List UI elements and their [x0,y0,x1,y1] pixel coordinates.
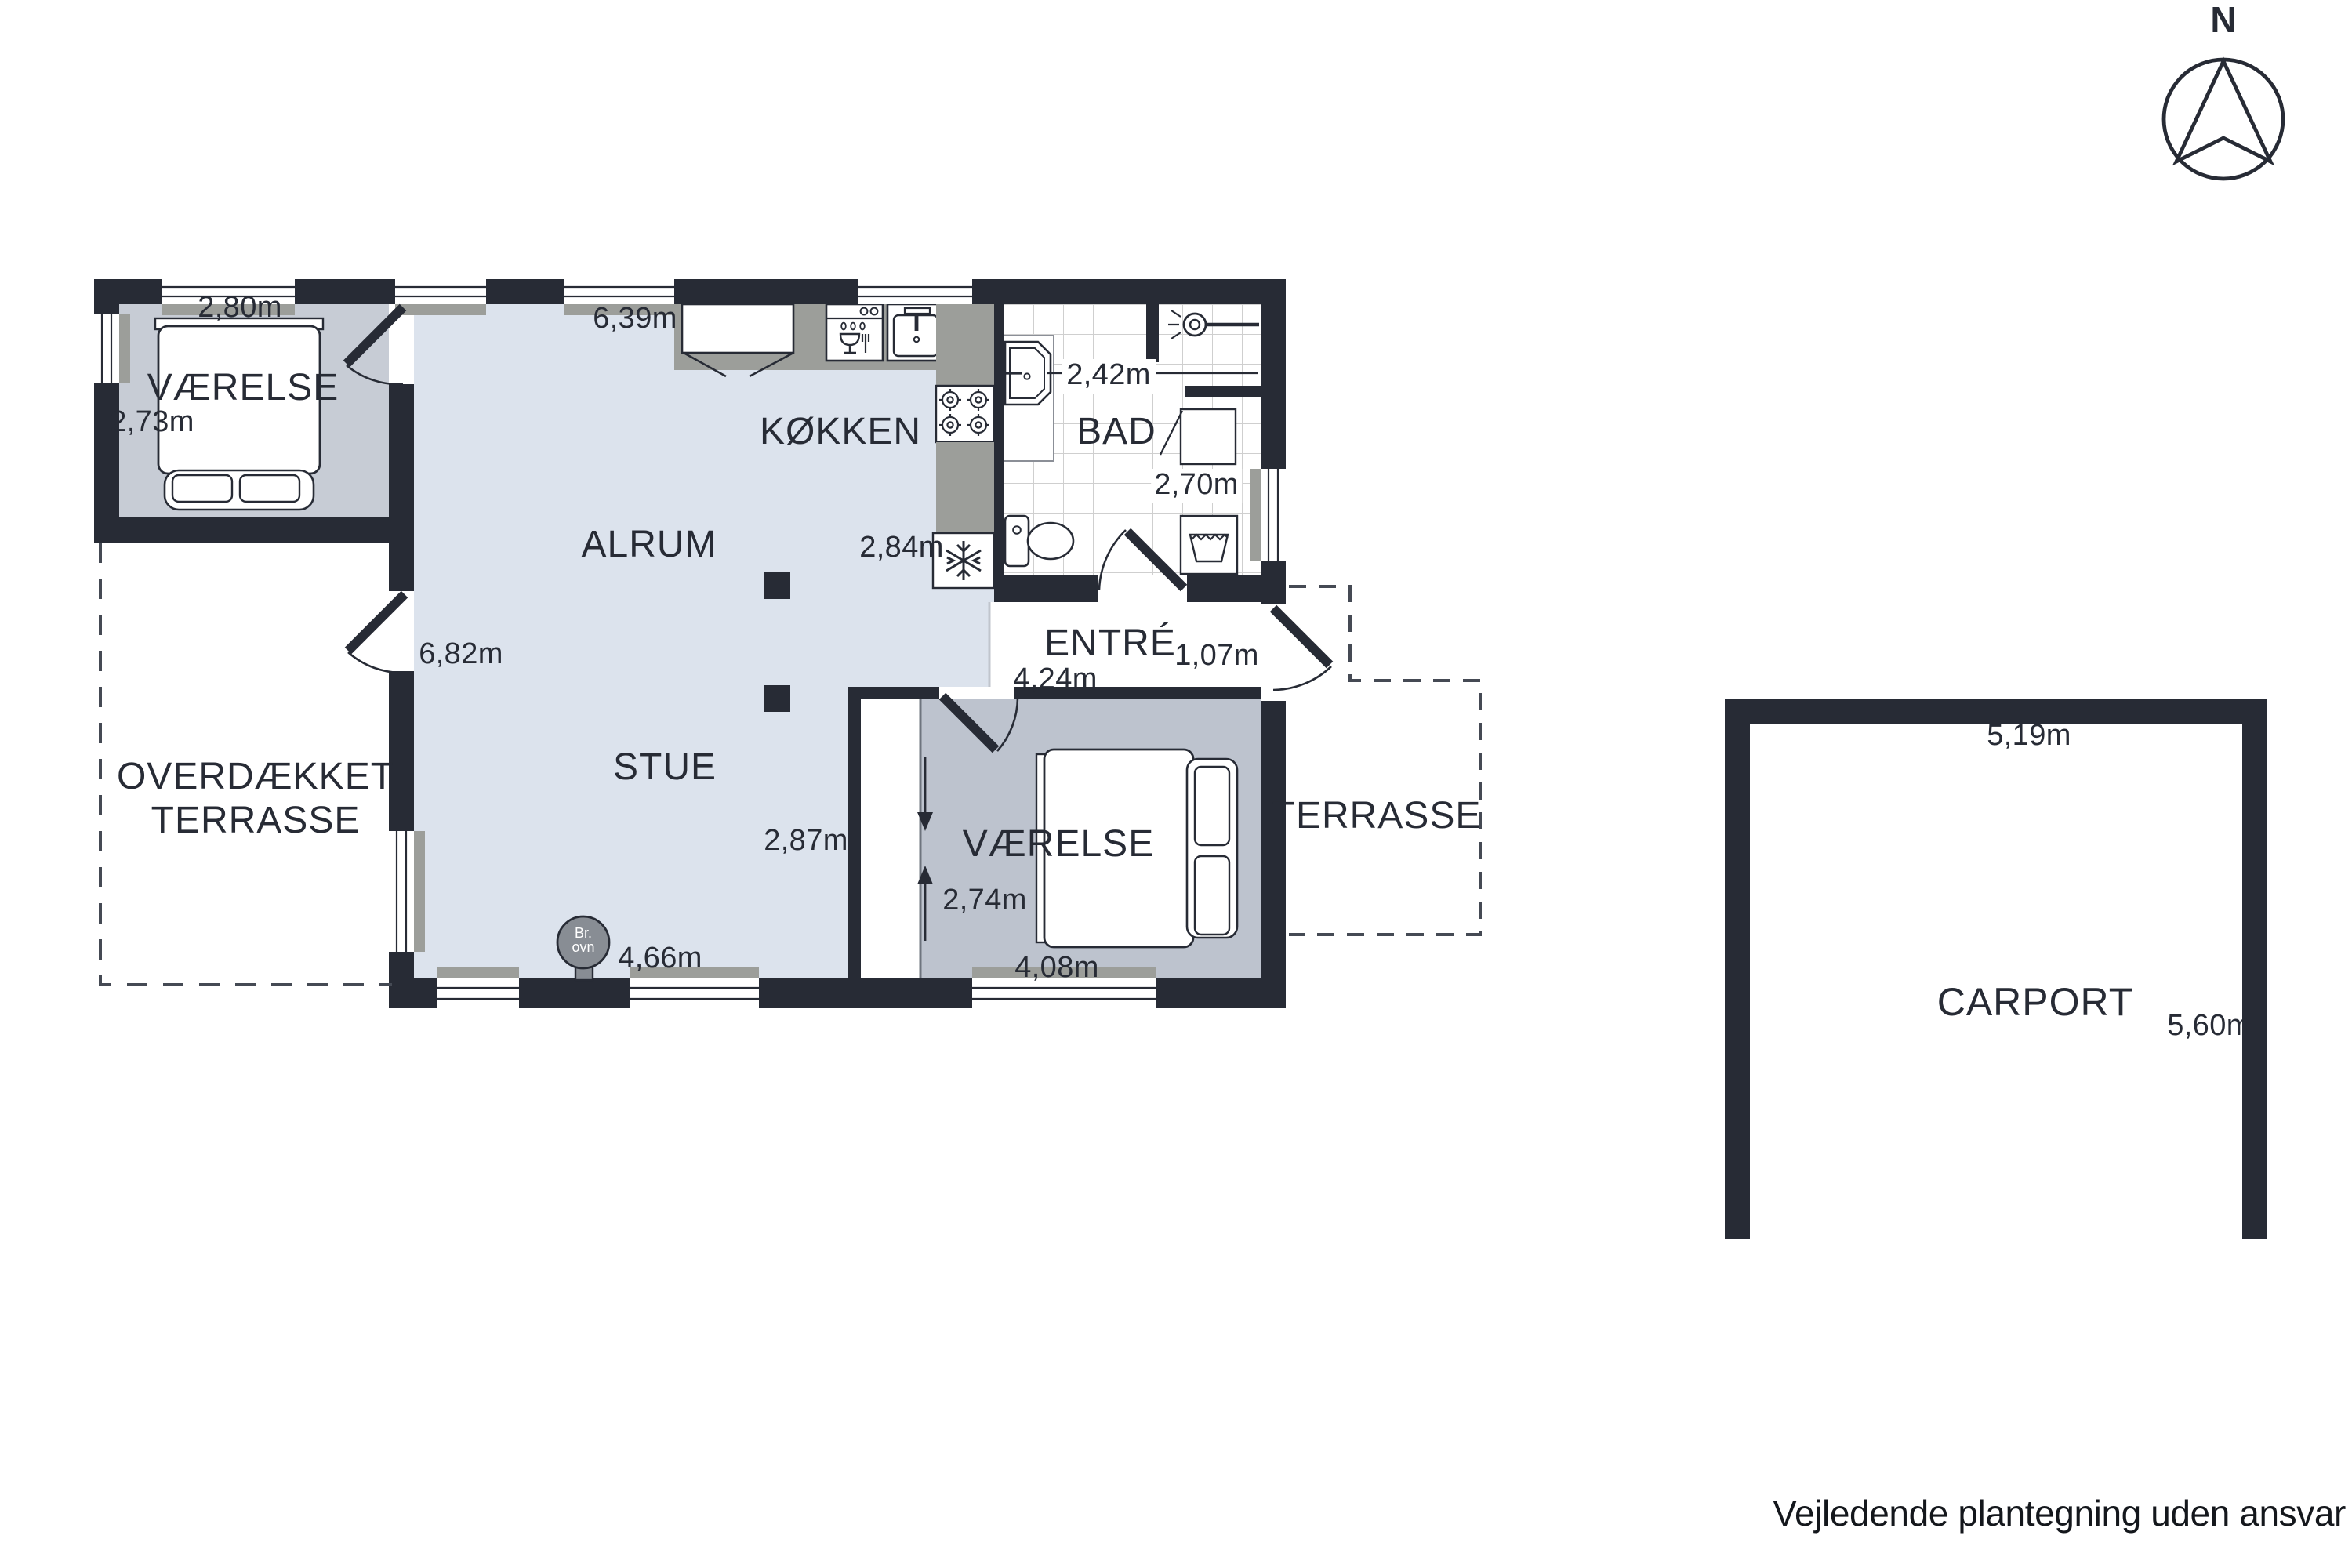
dim-bath-depth: 2,70m [1151,469,1242,503]
compass-north-label: N [2210,0,2236,42]
bath-sink-icon [1005,342,1051,405]
carport-walls [1725,699,2267,1239]
dim-bedroom-left-width: 2,80m [198,292,282,326]
room-label-stue: STUE [613,746,717,790]
dim-entre-door: 1,07m [1174,640,1259,674]
front-door [1273,608,1331,690]
room-label-bedroom-right: VÆRELSE [963,823,1154,867]
room-label-terrace: TERRASSE [1272,795,1482,839]
terrace-door [348,594,405,673]
floorplan-page: N VÆRELSE 2,80m 2,73m 6,39m ALRUM 6,82m … [0,0,2352,1568]
dim-bedroom-right-depth: 2,74m [942,884,1027,919]
dim-alrum-width: 6,39m [593,303,677,337]
dim-carport-depth: 5,60m [2167,1010,2252,1044]
dim-kitchen-depth: 2,84m [859,532,944,566]
dim-carport-width: 5,19m [1987,720,2071,754]
hall-strip-floor [861,699,920,978]
kitchen-cabinet [682,304,793,353]
room-label-alrum: ALRUM [581,524,717,568]
pillar [764,685,790,712]
dim-stue-width: 4,66m [618,942,702,977]
dim-alrum-length: 6,82m [419,638,503,673]
dim-stue-depth: 2,87m [764,825,848,859]
room-label-kitchen: KØKKEN [760,411,921,455]
pillar [764,572,790,599]
room-label-bedroom-left: VÆRELSE [147,367,339,411]
room-label-entre: ENTRÉ [1044,622,1176,666]
bath-cabinet [1181,409,1236,464]
disclaimer-text: Vejledende plantegning uden ansvar [1773,1493,2346,1535]
kitchen-sink-icon [887,304,944,361]
washing-machine-icon [1181,516,1237,574]
stove-icon [936,386,994,442]
room-label-bath: BAD [1076,411,1156,455]
floorplan-stage: N VÆRELSE 2,80m 2,73m 6,39m ALRUM 6,82m … [0,0,2352,1568]
dim-entre-width: 4,24m [1013,663,1098,698]
dishwasher-icon [826,304,883,361]
terrace-outline [1289,586,1480,935]
dim-bedroom-right-width: 4,08m [1014,952,1099,986]
room-label-carport: CARPORT [1937,981,2134,1026]
room-label-covered-terrace: OVERDÆKKET TERRASSE [117,756,394,844]
compass-icon [2164,60,2283,179]
dim-bedroom-left-depth: 2,73m [110,406,194,441]
wood-stove-label: Br. ovn [572,927,594,955]
dim-bath-width: 2,42m [1062,359,1156,394]
